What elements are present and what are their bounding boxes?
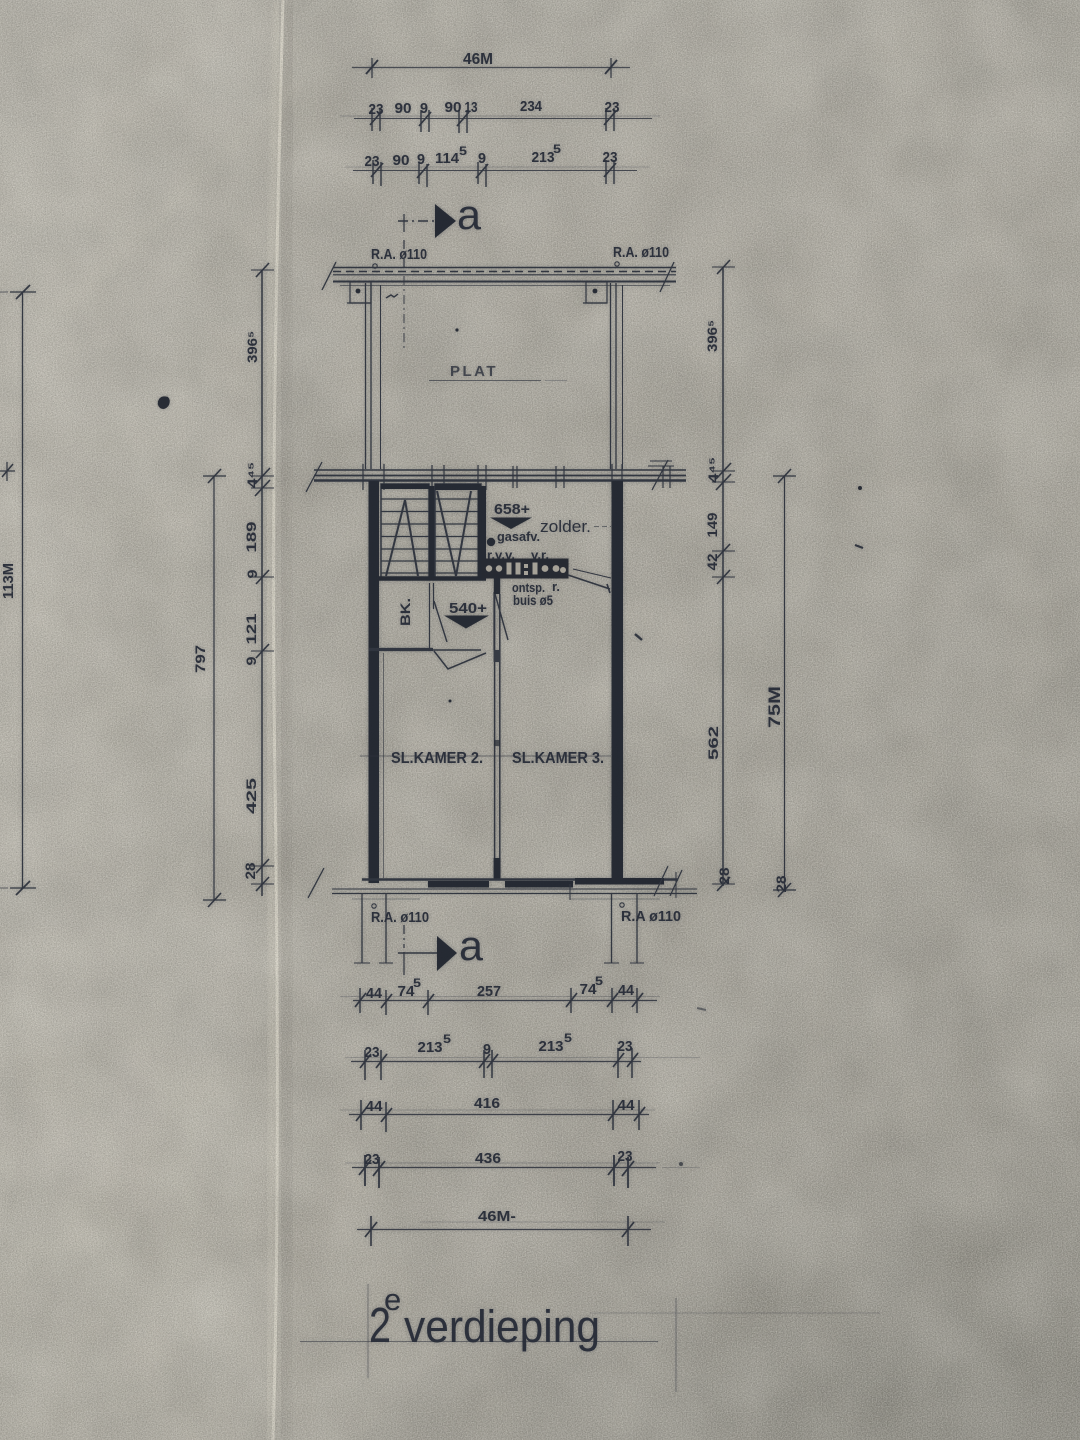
svg-text:46M: 46M [463, 51, 493, 68]
svg-text:4⁴⁵: 4⁴⁵ [245, 462, 260, 488]
svg-text:23: 23 [365, 1151, 380, 1168]
svg-text:r.: r. [552, 579, 560, 594]
svg-text:5: 5 [595, 974, 603, 988]
svg-text:9: 9 [478, 150, 486, 167]
svg-text:verdieping: verdieping [404, 1301, 600, 1352]
svg-text:234: 234 [520, 98, 543, 115]
svg-text:23: 23 [365, 153, 380, 170]
svg-text:75M: 75M [765, 686, 784, 728]
svg-text:416: 416 [474, 1095, 500, 1112]
svg-text:23: 23 [365, 1044, 380, 1061]
svg-text:28: 28 [717, 867, 732, 885]
svg-text:540+: 540+ [449, 600, 487, 617]
svg-text:44: 44 [366, 1098, 384, 1115]
svg-text:R.A. ø110: R.A. ø110 [371, 247, 427, 263]
svg-text:658+: 658+ [494, 501, 530, 518]
svg-text:9: 9 [483, 1041, 491, 1058]
svg-text:5: 5 [459, 144, 467, 158]
svg-text:R.A. ø110: R.A. ø110 [371, 910, 429, 926]
svg-text:R.A ø110: R.A ø110 [621, 909, 681, 925]
svg-text:e: e [384, 1282, 401, 1317]
svg-text:436: 436 [475, 1150, 501, 1167]
svg-text:5: 5 [443, 1032, 451, 1046]
svg-text:SL.KAMER 3.: SL.KAMER 3. [512, 750, 604, 767]
svg-text:9: 9 [420, 100, 428, 117]
svg-text:90: 90 [395, 100, 412, 117]
svg-text:213: 213 [532, 149, 555, 166]
svg-text:113M: 113M [0, 563, 17, 599]
svg-text:28: 28 [243, 862, 258, 880]
svg-text:a: a [457, 191, 482, 238]
svg-text:396⁵: 396⁵ [245, 331, 260, 363]
svg-text:4⁴⁵: 4⁴⁵ [706, 457, 721, 483]
svg-text:R.A. ø110: R.A. ø110 [613, 245, 669, 261]
svg-text:44: 44 [618, 982, 635, 999]
svg-text:gasafv.: gasafv. [497, 530, 540, 544]
svg-text:213: 213 [539, 1038, 564, 1055]
svg-text:5: 5 [564, 1031, 572, 1045]
svg-text:23: 23 [369, 101, 384, 118]
svg-text:zolder.: zolder. [540, 518, 591, 536]
svg-text:797: 797 [192, 645, 208, 673]
svg-text:SL.KAMER 2.: SL.KAMER 2. [391, 750, 483, 767]
svg-text:90: 90 [393, 152, 410, 169]
svg-text:257: 257 [477, 983, 501, 1000]
svg-text:23: 23 [618, 1038, 633, 1055]
svg-text:5: 5 [553, 142, 561, 156]
svg-text:562: 562 [706, 726, 721, 760]
svg-text:BK.: BK. [397, 598, 413, 626]
svg-text:90: 90 [445, 99, 462, 116]
svg-text:396⁵: 396⁵ [705, 320, 720, 352]
svg-text:114: 114 [435, 150, 460, 167]
svg-text:23: 23 [618, 1148, 633, 1165]
svg-text:buis ø5: buis ø5 [513, 593, 553, 608]
svg-text:23: 23 [603, 149, 618, 166]
svg-text:213: 213 [418, 1039, 443, 1056]
svg-text:425: 425 [244, 777, 259, 814]
svg-text:42: 42 [705, 554, 720, 571]
svg-text:44: 44 [618, 1097, 636, 1114]
svg-text:13: 13 [465, 99, 478, 116]
svg-text:5: 5 [413, 976, 421, 990]
svg-text:44: 44 [366, 985, 383, 1002]
svg-text:a: a [459, 922, 484, 969]
svg-text:121: 121 [244, 613, 259, 645]
svg-text:PLAT: PLAT [450, 363, 498, 380]
svg-text:9: 9 [417, 151, 425, 168]
svg-text:46M-: 46M- [478, 1208, 516, 1225]
svg-text:28: 28 [774, 875, 789, 893]
svg-text:9: 9 [245, 570, 260, 579]
svg-text:9: 9 [244, 657, 259, 666]
svg-text:149: 149 [705, 513, 720, 538]
svg-text:23: 23 [605, 99, 620, 116]
svg-text:189: 189 [244, 522, 259, 553]
